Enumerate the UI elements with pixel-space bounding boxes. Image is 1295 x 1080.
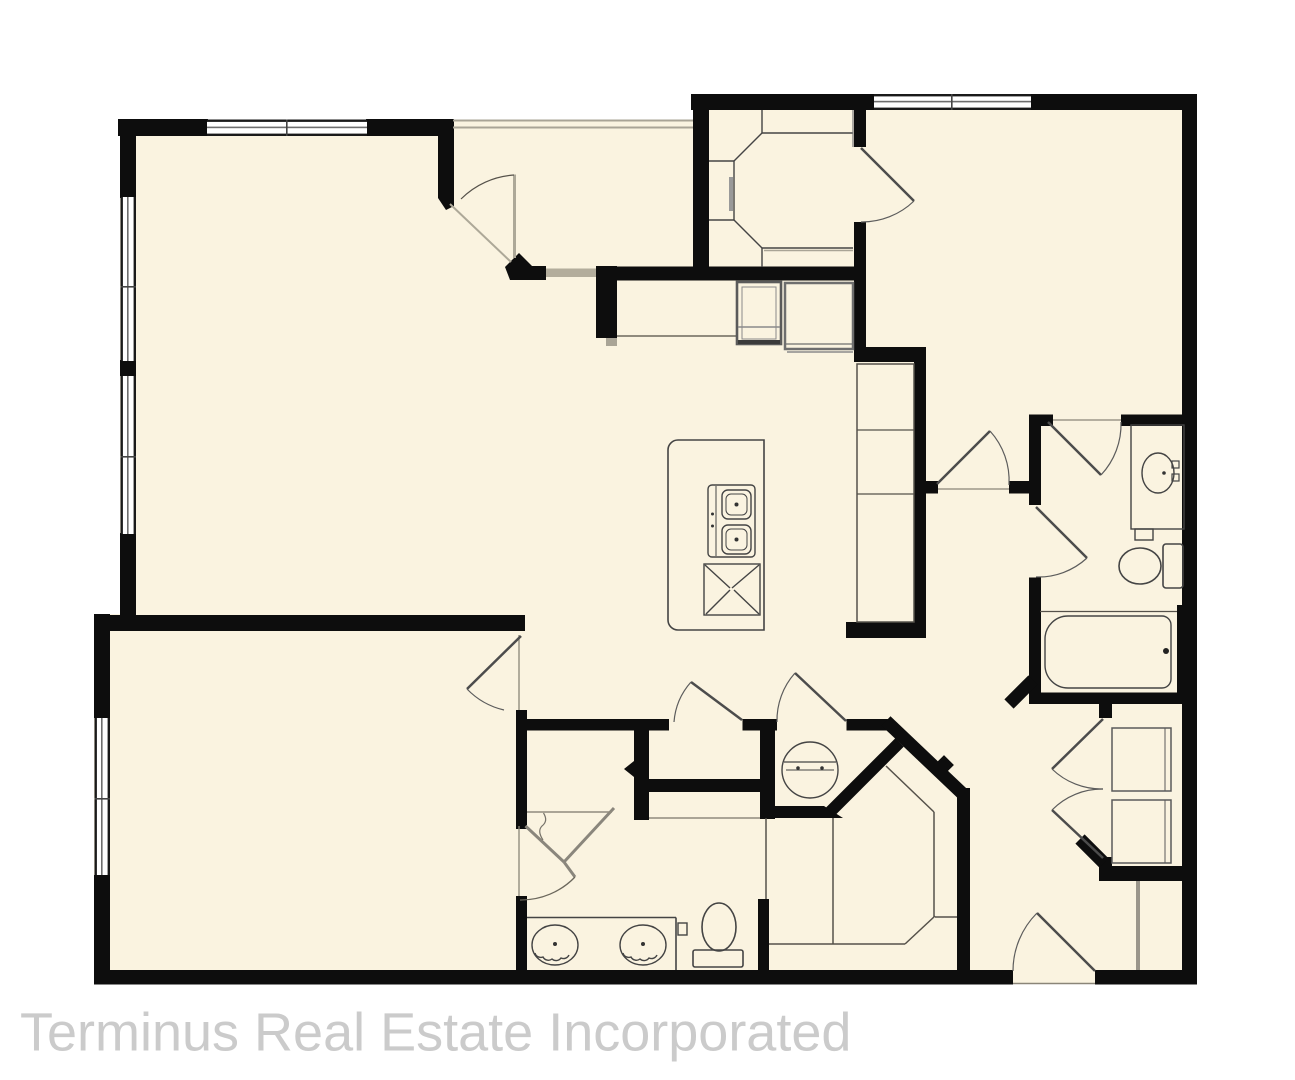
svg-text:Terminus Real Estate Incorpora: Terminus Real Estate Incorporated [20, 1003, 851, 1063]
